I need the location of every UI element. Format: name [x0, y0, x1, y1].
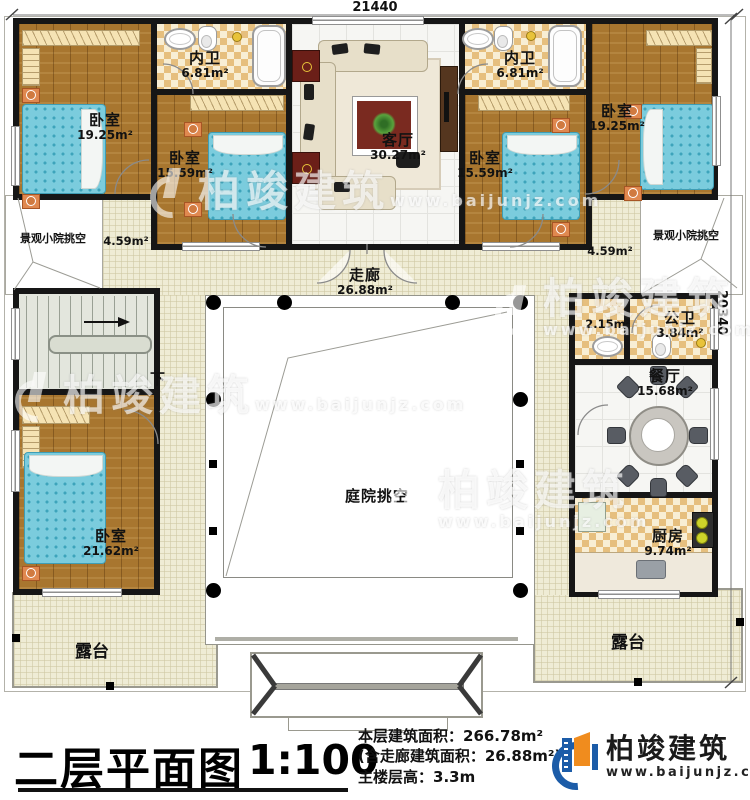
bathtub — [252, 25, 286, 87]
cushion — [334, 182, 350, 192]
label-washroom-area: 2.15m² — [578, 318, 638, 331]
window — [11, 308, 20, 360]
label-dining: 餐厅15.68m² — [620, 368, 710, 399]
wardrobe — [646, 30, 712, 46]
brand-name: 柏竣建筑 — [606, 734, 750, 763]
nightstand — [552, 222, 570, 237]
terrace-column — [106, 682, 114, 690]
label-bedroom-mid-left: 卧室15.59m² — [140, 150, 230, 181]
nightstand — [184, 122, 202, 137]
kitchen-sink — [636, 560, 666, 579]
corner-cabinet — [292, 50, 320, 82]
wardrobe — [478, 95, 570, 111]
stat-total-area: 本层建筑面积：266.78m² — [358, 726, 561, 746]
toilet — [494, 26, 513, 51]
column — [277, 295, 292, 310]
area-stats: 本层建筑面积：266.78m² (含走廊建筑面积：26.88m²) 主楼层高：3… — [358, 726, 561, 787]
label-bedroom-top-left: 卧室19.25m² — [60, 112, 150, 143]
column — [206, 392, 221, 407]
column — [445, 295, 460, 310]
floor-plan-page: { "dimensions": { "top": "21440", "right… — [0, 0, 750, 798]
window — [11, 430, 20, 492]
column — [513, 295, 528, 310]
yard-right-void — [640, 195, 743, 295]
label-bedroom-mid-right: 卧室15.59m² — [440, 150, 530, 181]
window — [598, 590, 680, 599]
column — [513, 392, 528, 407]
nightstand — [552, 118, 570, 133]
label-living: 客厅30.27m² — [352, 132, 444, 163]
column — [513, 583, 528, 598]
label-yard-right: 景观小院挑空 — [636, 230, 736, 243]
top-dimension-label: 21440 — [340, 0, 410, 15]
window — [312, 16, 424, 25]
nightstand — [184, 202, 202, 217]
label-corridor: 走廊26.88m² — [320, 267, 410, 298]
sink — [462, 28, 494, 50]
canopy-ridge — [272, 683, 464, 690]
window — [482, 242, 560, 251]
nightstand — [624, 186, 642, 201]
sofa-bottom — [318, 176, 396, 210]
label-yard-left: 景观小院挑空 — [8, 233, 98, 246]
title-underline — [18, 788, 348, 792]
brand-url: www.baijunjz.com — [606, 764, 750, 782]
terrace-left — [12, 592, 218, 688]
cushion — [364, 43, 381, 55]
cushion — [304, 84, 314, 100]
shelf — [22, 48, 40, 86]
label-bedroom-bottom-left: 卧室21.62m² — [66, 528, 156, 559]
label-terrace-right: 露台 — [593, 634, 663, 654]
nightstand — [22, 194, 40, 209]
nightstand — [22, 566, 40, 581]
toilet — [198, 26, 217, 51]
wardrobe — [190, 95, 284, 111]
column — [206, 295, 221, 310]
column-small — [516, 527, 524, 535]
label-public-bath: 公卫3.84m² — [645, 310, 715, 341]
right-dimension-label: 20340 — [714, 290, 729, 335]
wardrobe — [22, 406, 90, 424]
light-fixture — [526, 31, 536, 41]
label-bath-right: 内卫6.81m² — [485, 50, 555, 81]
label-courtyard: 庭院挑空 — [322, 488, 432, 505]
nightstand — [22, 88, 40, 103]
courtyard-edge-bar — [215, 637, 518, 641]
column — [206, 583, 221, 598]
stair-down-label: 下 — [150, 368, 165, 389]
stat-corridor-area: (含走廊建筑面积：26.88m²) — [358, 746, 561, 766]
label-yard-left-area: 4.59m² — [100, 235, 152, 248]
label-kitchen: 厨房9.74m² — [623, 528, 713, 559]
window — [42, 588, 122, 597]
window — [182, 242, 260, 251]
chair — [607, 427, 626, 444]
window — [710, 388, 719, 460]
wardrobe — [22, 30, 140, 46]
brand-logo: 柏竣建筑 www.baijunjz.com — [552, 730, 750, 786]
dining-table-inner — [641, 418, 675, 452]
terrace-column — [736, 618, 744, 626]
chair — [689, 427, 708, 444]
tv-screen — [444, 92, 449, 122]
stat-floor-height: 主楼层高：3.3m — [358, 767, 561, 787]
shelf — [696, 48, 712, 84]
label-bath-left: 内卫6.81m² — [170, 50, 240, 81]
label-terrace-left: 露台 — [57, 643, 127, 663]
window — [712, 96, 721, 166]
courtyard-void — [223, 307, 513, 578]
brand-logo-icon — [552, 730, 598, 786]
corner-cabinet — [292, 152, 320, 184]
light-fixture — [232, 32, 242, 42]
fridge — [578, 502, 606, 532]
stair-rail — [48, 335, 152, 354]
label-bedroom-top-right: 卧室19.25m² — [572, 103, 662, 134]
terrace-column — [634, 678, 642, 686]
walkway-left-floor — [158, 295, 210, 597]
column-small — [209, 527, 217, 535]
sink — [164, 28, 196, 50]
column-small — [516, 460, 524, 468]
column-small — [209, 460, 217, 468]
sink — [592, 336, 623, 357]
chair — [650, 478, 667, 497]
window — [11, 126, 20, 186]
label-yard-right-area: 4.59m² — [584, 245, 636, 258]
terrace-column — [12, 634, 20, 642]
